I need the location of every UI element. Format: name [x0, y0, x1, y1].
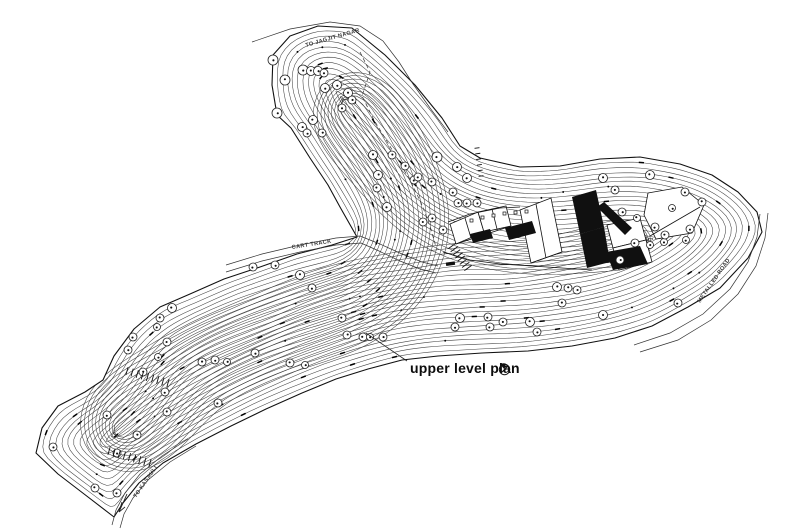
tree-trunk-dot	[214, 360, 216, 362]
tree-symbol	[661, 239, 668, 246]
stair-rung	[131, 369, 133, 377]
tree-trunk-dot	[452, 192, 454, 194]
tree-trunk-dot	[684, 191, 686, 193]
tree-trunk-dot	[685, 240, 687, 242]
tree-trunk-dot	[284, 78, 286, 80]
tree-symbol	[432, 152, 442, 162]
tree-symbol	[154, 324, 161, 331]
stair-rung	[462, 262, 469, 267]
slope-tick	[301, 376, 306, 378]
slope-tick	[257, 361, 262, 363]
tree-symbol	[669, 205, 676, 212]
tree-symbol	[631, 239, 639, 247]
tree-trunk-dot	[340, 317, 342, 319]
tree-trunk-dot	[676, 303, 678, 305]
tree-symbol	[526, 318, 535, 327]
tree-trunk-dot	[170, 307, 172, 309]
tree-symbol	[414, 173, 422, 181]
tree-trunk-dot	[466, 177, 468, 179]
contour-dot	[152, 397, 154, 399]
tree-trunk-dot	[577, 289, 579, 291]
tree-trunk-dot	[305, 364, 307, 366]
tree-symbol	[338, 104, 346, 112]
contour-line	[56, 42, 743, 492]
tree-trunk-dot	[307, 133, 309, 135]
tree-symbol	[553, 283, 562, 292]
slope-tick	[120, 481, 123, 485]
stair-rung	[123, 452, 125, 460]
tree-trunk-dot	[457, 202, 459, 204]
tree-trunk-dot	[156, 326, 158, 328]
tree-trunk-dot	[614, 189, 616, 191]
slope-tick	[555, 329, 560, 330]
tree-trunk-dot	[227, 361, 229, 363]
stair-rung	[476, 159, 481, 160]
tree-symbol	[296, 271, 305, 280]
tree-symbol	[155, 354, 162, 361]
tree-symbol	[686, 225, 694, 233]
tree-trunk-dot	[127, 349, 129, 351]
tree-symbol	[473, 199, 481, 207]
tree-symbol	[599, 174, 608, 183]
tree-symbol	[661, 231, 669, 239]
tree-trunk-dot	[404, 165, 406, 167]
contour-dot	[607, 186, 609, 188]
tree-trunk-dot	[536, 331, 538, 333]
slope-tick	[288, 276, 293, 278]
tree-trunk-dot	[422, 221, 424, 223]
slope-tick	[669, 243, 673, 246]
slope-tick	[180, 367, 185, 370]
slope-tick	[491, 188, 496, 189]
tree-symbol	[486, 323, 494, 331]
slope-tick	[670, 299, 675, 302]
contour-dot	[540, 197, 542, 199]
tree-symbol	[681, 188, 689, 196]
tree-symbol	[419, 218, 427, 226]
tree-symbol	[318, 129, 326, 137]
tree-trunk-dot	[131, 337, 133, 339]
tree-trunk-dot	[341, 107, 343, 109]
tree-symbol	[161, 388, 169, 396]
tree-symbol	[401, 162, 409, 170]
tree-symbol	[454, 199, 462, 207]
tree-trunk-dot	[529, 320, 531, 322]
tree-trunk-dot	[620, 259, 622, 261]
slope-tick	[392, 356, 397, 357]
site-plan-drawing: TO JAGJIT NAGAR CART TRACK METALLED ROAD…	[0, 0, 800, 530]
tree-symbol	[49, 443, 57, 451]
contour-dot	[440, 193, 442, 195]
slope-tick	[540, 321, 545, 322]
tree-trunk-dot	[556, 285, 558, 287]
tree-trunk-dot	[622, 211, 624, 213]
tree-trunk-dot	[561, 302, 563, 304]
tree-symbol	[374, 171, 383, 180]
tree-symbol	[338, 314, 346, 322]
tree-trunk-dot	[347, 92, 349, 94]
tree-symbol	[124, 346, 132, 354]
tree-symbol	[449, 188, 457, 196]
tree-trunk-dot	[201, 361, 203, 363]
tree-trunk-dot	[567, 286, 569, 288]
tree-symbol	[456, 314, 465, 323]
tree-symbol	[611, 186, 619, 194]
contour-dot	[698, 272, 700, 274]
tree-symbol	[558, 299, 566, 307]
tree-trunk-dot	[347, 333, 349, 335]
tree-trunk-dot	[164, 392, 166, 394]
stair-rung	[478, 170, 483, 171]
tree-symbol	[308, 284, 316, 292]
tree-trunk-dot	[251, 267, 253, 269]
tree-symbol	[451, 323, 459, 331]
slope-tick	[716, 201, 720, 204]
tree-symbol	[564, 284, 572, 292]
tree-trunk-dot	[277, 112, 279, 114]
slope-tick	[73, 414, 77, 417]
tree-symbol	[211, 356, 219, 364]
tree-symbol	[373, 184, 381, 192]
tree-trunk-dot	[336, 85, 338, 87]
slope-tick	[99, 493, 103, 496]
tree-symbol	[379, 333, 387, 341]
slope-tick	[326, 273, 331, 275]
slope-tick	[668, 177, 673, 178]
contour-dot	[345, 178, 347, 180]
tree-symbol	[439, 226, 447, 234]
contour-dot	[444, 340, 446, 342]
tree-trunk-dot	[254, 353, 256, 355]
cart-track-edge-1	[226, 236, 438, 266]
tree-symbol	[463, 199, 471, 207]
contour-line	[49, 36, 749, 499]
tree-symbol	[309, 116, 318, 125]
stair-rung	[136, 370, 138, 378]
tree-trunk-dot	[648, 173, 650, 175]
slope-tick	[241, 413, 246, 415]
slope-tick	[350, 364, 355, 366]
tree-trunk-dot	[456, 166, 458, 168]
tree-symbol	[103, 411, 111, 419]
tree-symbol	[484, 313, 492, 321]
tree-trunk-dot	[454, 327, 456, 329]
slope-tick	[45, 430, 47, 435]
tree-trunk-dot	[372, 153, 374, 155]
tree-symbol	[599, 311, 608, 320]
tree-symbol	[634, 215, 641, 222]
tree-symbol	[251, 349, 259, 357]
contour-line	[102, 93, 649, 449]
tree-symbol	[683, 237, 690, 244]
tree-trunk-dot	[417, 176, 419, 178]
contour-line	[96, 87, 646, 455]
tree-trunk-dot	[323, 72, 325, 74]
contour-line	[114, 97, 682, 436]
slope-tick	[78, 421, 82, 424]
site-plan-sheet: TO JAGJIT NAGAR CART TRACK METALLED ROAD…	[0, 0, 800, 530]
tree-trunk-dot	[635, 216, 637, 218]
tree-symbol	[573, 286, 581, 294]
tree-trunk-dot	[166, 341, 168, 343]
tree-symbol	[286, 359, 294, 367]
tree-symbol	[647, 242, 654, 249]
tree-trunk-dot	[701, 200, 703, 202]
tree-trunk-dot	[488, 326, 490, 328]
tree-symbol	[271, 261, 279, 269]
tree-symbol	[163, 338, 171, 346]
tree-symbol	[214, 399, 222, 407]
small-ink-label-speck	[446, 261, 455, 266]
tree-symbol	[333, 81, 342, 90]
tree-trunk-dot	[689, 229, 691, 231]
tree-trunk-dot	[486, 317, 488, 319]
title-block: upper level plan	[366, 333, 520, 376]
dark-roof-tower-lower	[580, 227, 610, 268]
slope-tick	[360, 313, 365, 314]
contour-dot	[673, 287, 675, 289]
tree-trunk-dot	[649, 244, 651, 246]
tree-symbol	[388, 151, 396, 159]
contour-dot	[359, 295, 361, 297]
tree-symbol	[224, 359, 231, 366]
tree-trunk-dot	[116, 453, 118, 455]
tree-trunk-dot	[663, 234, 665, 236]
tree-trunk-dot	[136, 434, 138, 436]
tree-symbol	[463, 174, 472, 183]
tree-trunk-dot	[106, 415, 108, 417]
slope-tick	[149, 332, 153, 335]
tree-symbol	[302, 362, 309, 369]
stair-rung	[477, 164, 482, 165]
tree-trunk-dot	[322, 132, 324, 134]
contour-dot	[344, 44, 346, 46]
tree-symbol	[249, 263, 257, 271]
tree-symbol	[133, 431, 141, 439]
road-to-kasauli-edge-2	[112, 439, 188, 525]
contour-dot	[562, 191, 564, 193]
tree-trunk-dot	[310, 69, 312, 71]
slope-tick	[340, 352, 345, 354]
tree-symbol	[428, 178, 436, 186]
tree-trunk-dot	[602, 176, 604, 178]
tree-symbol	[646, 171, 655, 180]
tree-trunk-dot	[302, 126, 304, 128]
tree-trunk-dot	[430, 180, 432, 182]
tree-symbol	[533, 328, 541, 336]
slope-tick	[305, 321, 310, 323]
road-to-kasauli-edge-1	[120, 446, 196, 528]
tree-symbol	[113, 489, 121, 497]
slope-tick	[376, 288, 380, 291]
tree-symbol	[383, 203, 392, 212]
tree-trunk-dot	[476, 202, 478, 204]
tree-trunk-dot	[275, 265, 277, 267]
tree-symbol	[343, 331, 351, 339]
tree-symbol	[268, 55, 278, 65]
tree-symbol	[698, 198, 706, 206]
tree-trunk-dot	[502, 321, 504, 323]
tree-symbol	[369, 151, 378, 160]
tree-symbol	[618, 208, 626, 216]
slope-tick	[406, 253, 408, 258]
tree-trunk-dot	[115, 492, 117, 494]
tree-trunk-dot	[311, 288, 313, 290]
tree-symbol	[320, 69, 328, 77]
building-complex	[443, 187, 704, 270]
tree-trunk-dot	[318, 70, 320, 72]
contour-line	[92, 83, 646, 460]
tree-trunk-dot	[352, 99, 354, 101]
tree-trunk-dot	[458, 317, 460, 319]
tree-trunk-dot	[653, 227, 655, 229]
tree-symbol	[348, 96, 356, 104]
tree-trunk-dot	[324, 88, 326, 90]
slope-tick	[411, 240, 412, 245]
slope-tick	[688, 271, 692, 274]
tree-trunk-dot	[302, 70, 304, 72]
tree-trunk-dot	[391, 154, 393, 156]
tree-symbol	[168, 304, 177, 313]
tree-symbol	[674, 299, 682, 307]
contour-dot	[631, 306, 633, 308]
road-label-cart-track: CART TRACK	[291, 239, 332, 251]
tree-trunk-dot	[375, 187, 377, 189]
tree-trunk-dot	[413, 180, 415, 182]
slope-tick	[422, 185, 426, 188]
tree-trunk-dot	[159, 316, 161, 318]
tree-trunk-dot	[442, 229, 444, 231]
slope-tick	[123, 408, 127, 411]
slope-tick	[318, 63, 323, 65]
slope-tick	[415, 115, 418, 119]
contour-dot	[394, 239, 396, 241]
dark-roof-tower	[572, 190, 604, 234]
tree-trunk-dot	[378, 173, 380, 175]
tree-trunk-dot	[431, 217, 433, 219]
stair-rung	[475, 153, 480, 154]
contour-lines	[43, 31, 755, 507]
tree-symbol	[303, 129, 311, 137]
tree-trunk-dot	[672, 208, 674, 210]
tree-symbol	[651, 223, 659, 231]
tree-symbol	[156, 314, 164, 322]
roads-group	[112, 22, 768, 528]
slope-tick	[720, 241, 723, 245]
tree-symbol	[616, 256, 624, 264]
tree-trunk-dot	[216, 402, 218, 404]
tree-symbol	[272, 108, 282, 118]
tree-trunk-dot	[383, 336, 385, 338]
stair-rung	[453, 250, 460, 255]
tree-symbol	[453, 163, 462, 172]
tree-trunk-dot	[602, 314, 604, 316]
tree-trunk-dot	[52, 446, 54, 448]
tree-symbol	[198, 358, 206, 366]
tree-trunk-dot	[311, 119, 313, 121]
tree-symbol	[129, 333, 137, 341]
tree-trunk-dot	[466, 202, 468, 204]
tree-trunk-dot	[93, 486, 95, 488]
tree-trunk-dot	[299, 273, 301, 275]
contour-dot	[321, 46, 323, 48]
road-label-kasauli: TO KASAULI	[133, 465, 160, 499]
tree-symbol	[499, 318, 507, 326]
tree-trunk-dot	[663, 241, 665, 243]
tree-trunk-dot	[166, 410, 168, 412]
tree-canopy	[634, 215, 641, 222]
tree-trunk-dot	[272, 59, 274, 61]
tree-trunk-dot	[385, 206, 387, 208]
slope-tick	[701, 228, 702, 233]
contour-dot	[297, 51, 299, 53]
tree-symbol	[321, 84, 330, 93]
slope-tick	[476, 197, 481, 199]
contour-dot	[96, 473, 98, 475]
tree-trunk-dot	[633, 242, 635, 244]
tree-symbol	[428, 214, 436, 222]
contour-dot	[284, 340, 286, 342]
tree-trunk-dot	[157, 357, 159, 359]
tree-symbol	[91, 484, 99, 492]
tree-trunk-dot	[361, 336, 363, 338]
tree-symbol	[163, 408, 171, 416]
tree-trunk-dot	[289, 361, 291, 363]
stair-rung	[475, 148, 480, 149]
slope-tick	[100, 464, 105, 466]
tree-trunk-dot	[435, 156, 437, 158]
tree-symbol	[280, 75, 290, 85]
tree-symbol	[359, 333, 367, 341]
